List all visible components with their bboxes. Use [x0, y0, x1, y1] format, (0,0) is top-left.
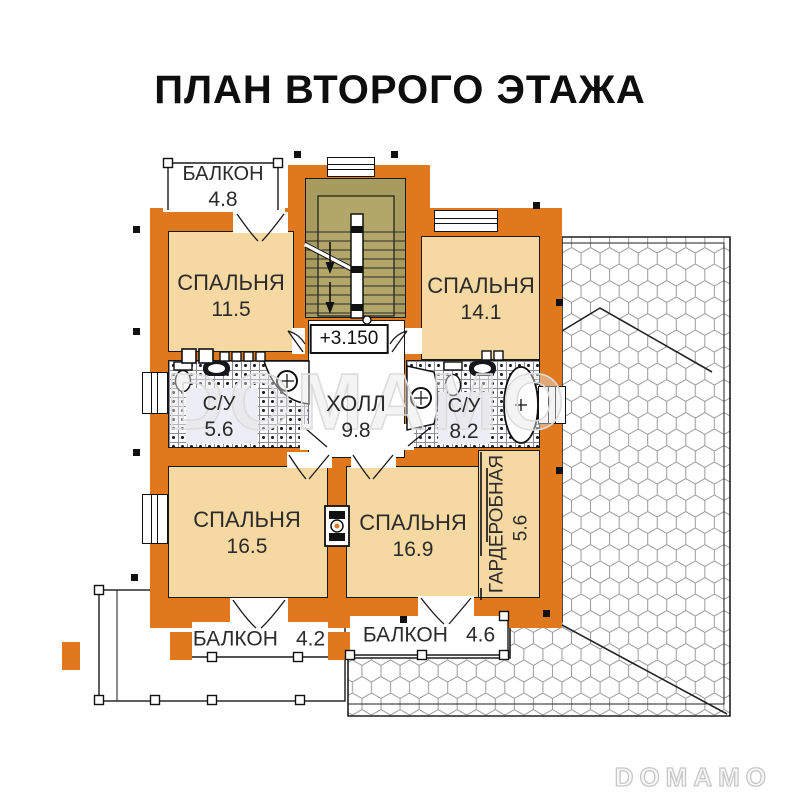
window	[142, 494, 168, 544]
wall-marker	[391, 151, 398, 158]
window	[142, 372, 168, 414]
floor-plan-page: ПЛАН ВТОРОГО ЭТАЖА	[0, 0, 800, 800]
label-bedroom-top-left: СПАЛЬНЯ 11.5	[177, 269, 285, 323]
door-opening	[230, 598, 288, 624]
door-opening	[292, 328, 305, 354]
wall-marker	[133, 226, 140, 233]
door-opening	[404, 424, 414, 450]
stairwell	[305, 178, 406, 318]
label-bedroom-bottom-left: СПАЛЬНЯ 16.5	[193, 506, 301, 560]
elevation-mark: +3.150	[310, 324, 389, 354]
door-opening	[233, 212, 288, 233]
label-balcony-top: БАЛКОН 4.8	[182, 162, 263, 212]
label-wardrobe: ГАРДЕРОБНАЯ	[484, 455, 511, 593]
wall-marker	[294, 151, 301, 158]
wall-marker	[533, 202, 540, 209]
page-title: ПЛАН ВТОРОГО ЭТАЖА	[0, 68, 800, 113]
terrace-pillar	[62, 642, 80, 670]
label-bathroom-left: С/У 5.6	[203, 392, 236, 442]
door-opening	[418, 596, 474, 618]
balcony-pillar	[170, 632, 192, 660]
roof-ridge	[562, 308, 712, 372]
wall-marker	[133, 328, 140, 335]
door-opening	[405, 328, 422, 354]
wall-marker	[556, 467, 563, 474]
wall-marker	[133, 449, 140, 456]
label-bedroom-bottom-right: СПАЛЬНЯ 16.9	[359, 509, 467, 563]
watermark-brand: DOMAMO	[615, 762, 772, 793]
label-bedroom-top-right: СПАЛЬНЯ 14.1	[427, 272, 535, 326]
door-opening	[300, 424, 312, 450]
wall-marker	[556, 299, 563, 306]
window	[434, 210, 498, 232]
balcony-pillar	[328, 632, 350, 660]
label-balcony-bottom-left: БАЛКОН4.2	[193, 626, 325, 653]
wall-marker	[543, 610, 550, 617]
door-opening	[287, 452, 332, 468]
label-balcony-bottom-right: БАЛКОН4.6	[363, 622, 495, 649]
roof-ridge	[562, 625, 727, 714]
door-opening	[351, 452, 396, 468]
window	[327, 157, 375, 177]
label-bathroom-right: С/У 8.2	[448, 394, 481, 444]
label-wardrobe-area: 5.6	[508, 515, 535, 541]
wall-marker	[131, 574, 138, 581]
label-hall: ХОЛЛ 9.8	[326, 390, 386, 444]
window	[538, 386, 566, 424]
